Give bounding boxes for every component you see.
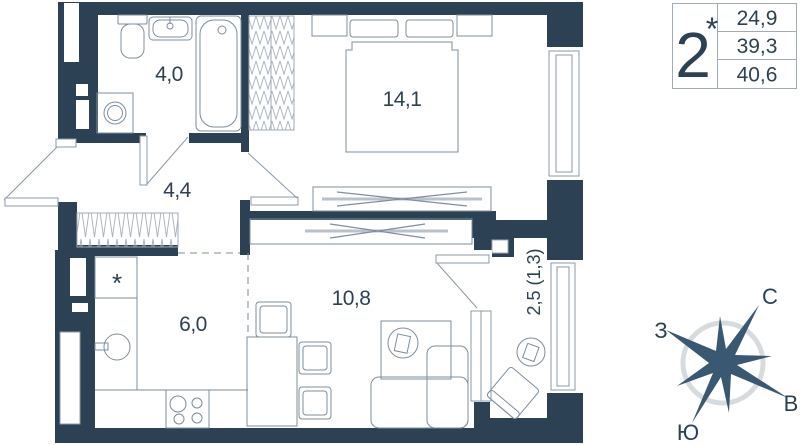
bathroom-area-label: 4,0 <box>155 63 183 86</box>
compass-east-label: В <box>784 391 799 416</box>
balcony-chair <box>486 366 540 420</box>
hallway-area-label: 4,4 <box>163 179 192 202</box>
compass-north-label: С <box>762 284 778 309</box>
legend-area-living: 24,9 <box>737 7 778 30</box>
stove <box>166 390 209 428</box>
living-room-wardrobe <box>250 219 472 244</box>
kitchen-appliance-marker: * <box>112 268 122 298</box>
bedroom-door <box>248 153 298 205</box>
armchair <box>256 302 291 337</box>
dining-chair-2 <box>299 387 331 419</box>
balcony-furniture <box>486 338 545 420</box>
pillow-left <box>350 20 398 37</box>
compass-west-label: З <box>654 318 667 343</box>
bedroom-furniture <box>312 15 492 211</box>
washing-machine <box>97 93 133 133</box>
floor-plan-canvas: 4,0 14,1 4,4 6,0 10,8 2,5 (1,3) * 2 * 24… <box>0 0 800 445</box>
pillow-right <box>406 20 453 37</box>
living-room-area-label: 10,8 <box>332 287 371 310</box>
kitchen-sink <box>95 334 130 360</box>
living-room-balcony-window <box>470 310 492 402</box>
bathtub <box>196 16 241 131</box>
dining-chair-1 <box>299 342 331 374</box>
living-room-furniture <box>247 219 472 428</box>
legend-area-total: 40,6 <box>737 64 778 87</box>
balcony-side-window <box>545 260 583 393</box>
bedroom-window <box>545 47 583 180</box>
balcony-table <box>517 338 545 366</box>
bedroom-area-label: 14,1 <box>383 88 422 111</box>
legend-area-apartment: 39,3 <box>737 35 778 58</box>
compass-rose: С З В Ю <box>654 284 798 445</box>
hallway-coat-rack <box>77 213 178 247</box>
floor-plan-page: 4,0 14,1 4,4 6,0 10,8 2,5 (1,3) * 2 * 24… <box>0 0 800 445</box>
bedroom-closet <box>249 16 294 130</box>
legend-rooms-star: * <box>706 11 718 47</box>
toilet <box>118 15 147 58</box>
nightstand-right <box>457 15 492 36</box>
sink <box>149 17 192 40</box>
legend-info-box: 2 * 24,9 39,3 40,6 <box>673 4 797 92</box>
sofa <box>371 346 468 428</box>
dining-table <box>247 337 297 426</box>
bedroom-wardrobe <box>313 187 491 211</box>
kitchen-window <box>60 332 80 424</box>
kitchen-area-label: 6,0 <box>179 313 207 336</box>
desk-chair <box>388 328 418 358</box>
compass-south-label: Ю <box>677 420 699 445</box>
nightstand-left <box>312 15 347 36</box>
balcony-area-label: 2,5 (1,3) <box>524 248 544 315</box>
